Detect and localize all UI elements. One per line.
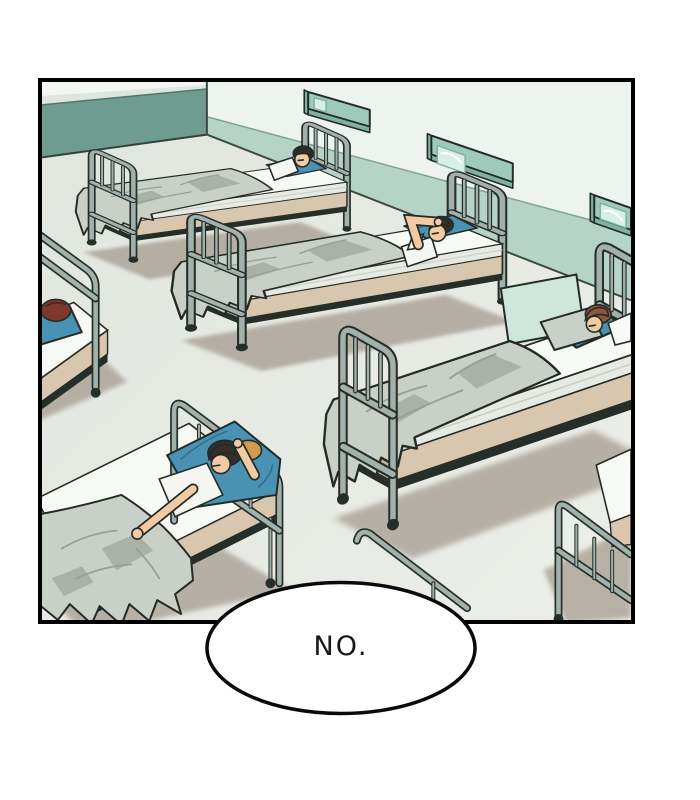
speech-bubble: NO.	[204, 579, 478, 718]
speech-text: NO.	[204, 579, 478, 718]
ward-illustration	[42, 82, 631, 620]
page: NO.	[0, 0, 700, 800]
comic-panel	[38, 78, 635, 624]
patient-left-edge	[42, 299, 71, 321]
